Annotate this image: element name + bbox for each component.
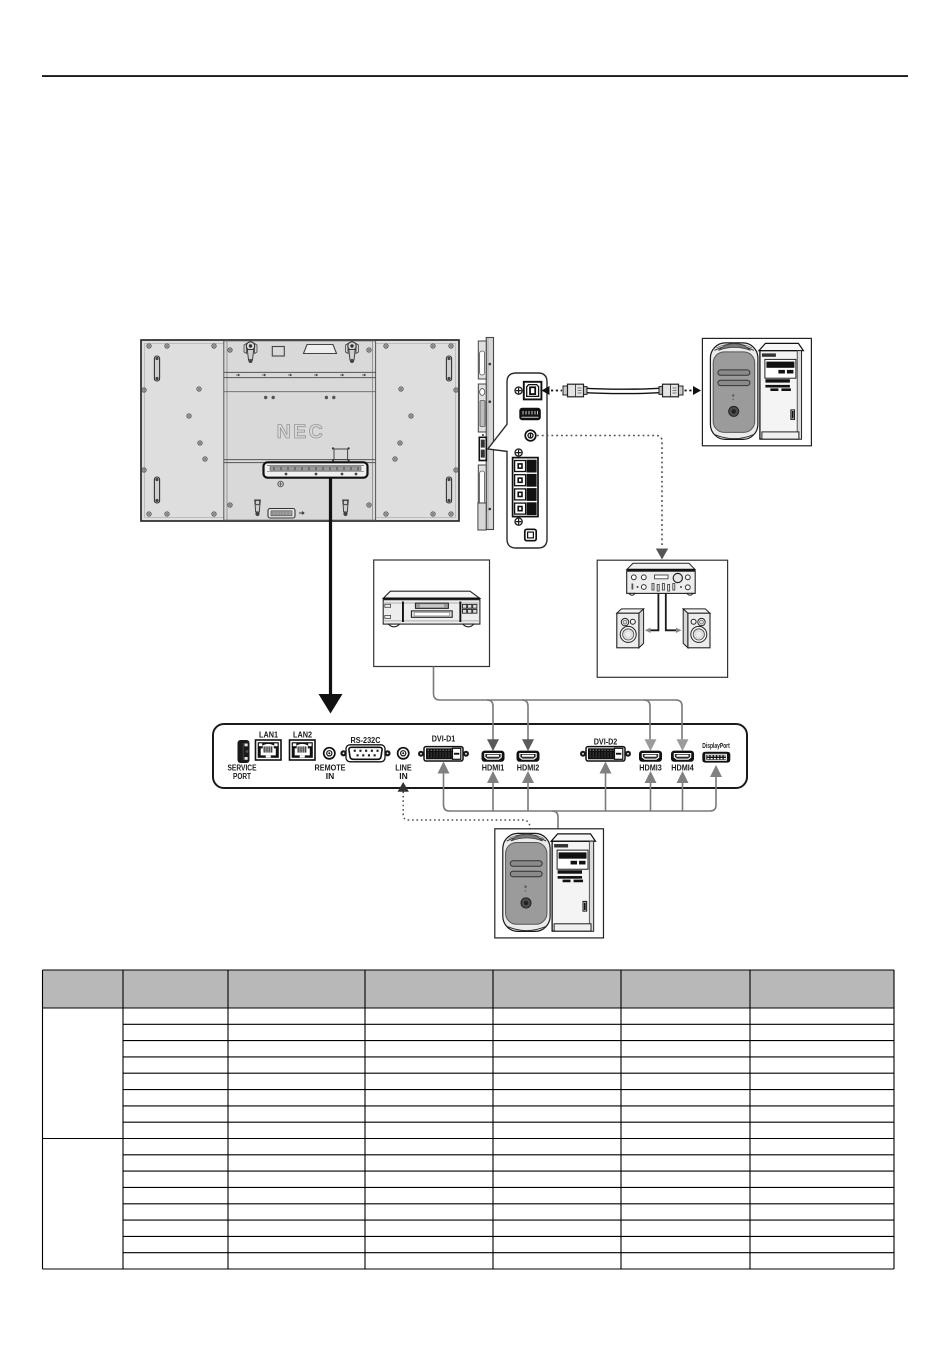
svg-text:HDMI1: HDMI1 [482, 763, 505, 772]
svg-text:DVI-D1: DVI-D1 [432, 735, 456, 744]
svg-text:DVI-D2: DVI-D2 [594, 738, 618, 747]
svg-text:LAN1: LAN1 [259, 731, 279, 740]
svg-text:DisplayPort: DisplayPort [702, 741, 730, 750]
svg-text:NEC: NEC [277, 421, 326, 443]
svg-text:HDMI4: HDMI4 [671, 763, 694, 772]
svg-text:HDMI3: HDMI3 [639, 763, 662, 772]
svg-text:PORT: PORT [233, 772, 251, 781]
svg-text:IN: IN [326, 772, 335, 781]
svg-text:RS-232C: RS-232C [351, 736, 381, 745]
svg-text:LAN2: LAN2 [293, 731, 313, 740]
svg-text:IN: IN [399, 772, 408, 781]
svg-text:HDMI2: HDMI2 [517, 763, 540, 772]
